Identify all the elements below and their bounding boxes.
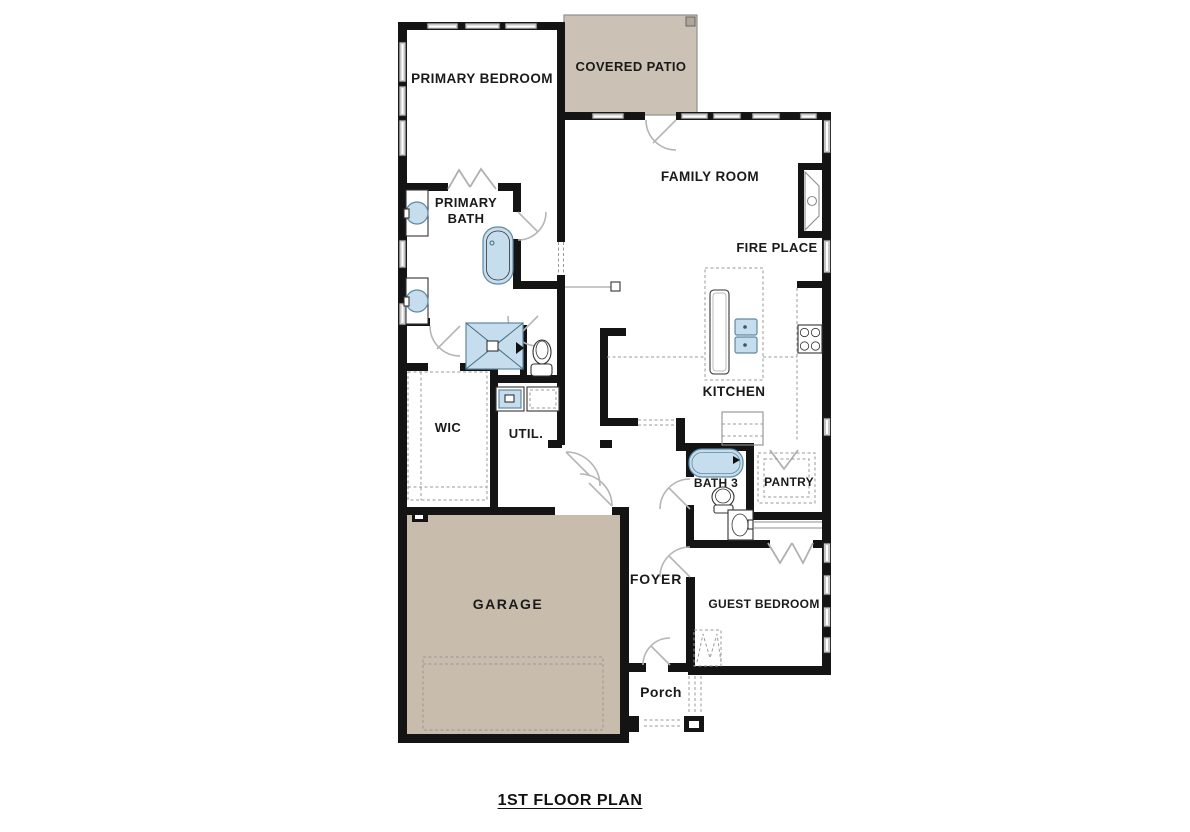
- label-wic: WIC: [435, 420, 462, 435]
- label-family-room: FAMILY ROOM: [661, 169, 759, 184]
- bathtub-icon: [483, 227, 513, 284]
- label-covered-patio: COVERED PATIO: [576, 59, 687, 74]
- floor-plan-drawing: PRIMARY BEDROOM COVERED PATIO FAMILY ROO…: [0, 0, 1190, 832]
- toilet-icon: [712, 487, 734, 513]
- kitchen-fixtures: [607, 268, 822, 445]
- fireplace-icon: [798, 163, 823, 238]
- label-util: UTIL.: [509, 426, 544, 441]
- plan-title: 1ST FLOOR PLAN: [420, 792, 720, 810]
- wic-shelves: [408, 372, 487, 500]
- label-fire-place: FIRE PLACE: [736, 240, 817, 255]
- bath3-fixtures: [689, 449, 753, 540]
- utility-fixtures: [496, 387, 559, 411]
- label-kitchen: KITCHEN: [703, 384, 766, 399]
- toilet-icon: [531, 340, 552, 376]
- bathtub-icon: [689, 449, 743, 477]
- guest-closet-marker: [694, 630, 721, 666]
- label-primary-bath-2: BATH: [448, 211, 485, 226]
- label-guest-bedroom: GUEST BEDROOM: [708, 597, 819, 611]
- plan-title-text: 1ST FLOOR PLAN: [498, 792, 643, 809]
- floor-plan-canvas: PRIMARY BEDROOM COVERED PATIO FAMILY ROO…: [0, 0, 1190, 832]
- cased-opening-icon: [448, 170, 470, 189]
- label-bath3: BATH 3: [694, 476, 738, 490]
- garage-floor-area: [407, 515, 620, 734]
- porch-column-inner: [689, 721, 699, 728]
- label-foyer: FOYER: [630, 571, 682, 587]
- dryer-icon: [527, 387, 559, 411]
- shower-icon: [466, 323, 524, 369]
- label-primary-bath-1: PRIMARY: [435, 195, 497, 210]
- label-garage: GARAGE: [473, 596, 543, 612]
- vanity-sink-icon: [728, 510, 753, 540]
- patio-corner-marker-icon: [686, 17, 695, 26]
- guest-door-chevron-icon: [768, 543, 792, 563]
- label-primary-bedroom: PRIMARY BEDROOM: [411, 71, 553, 86]
- island-sink-icon: [735, 319, 757, 353]
- attic-access: [565, 282, 620, 291]
- stove-icon: [798, 325, 822, 353]
- label-pantry: PANTRY: [764, 475, 814, 489]
- kitchen-counter: [722, 412, 763, 445]
- label-porch: Porch: [640, 684, 682, 700]
